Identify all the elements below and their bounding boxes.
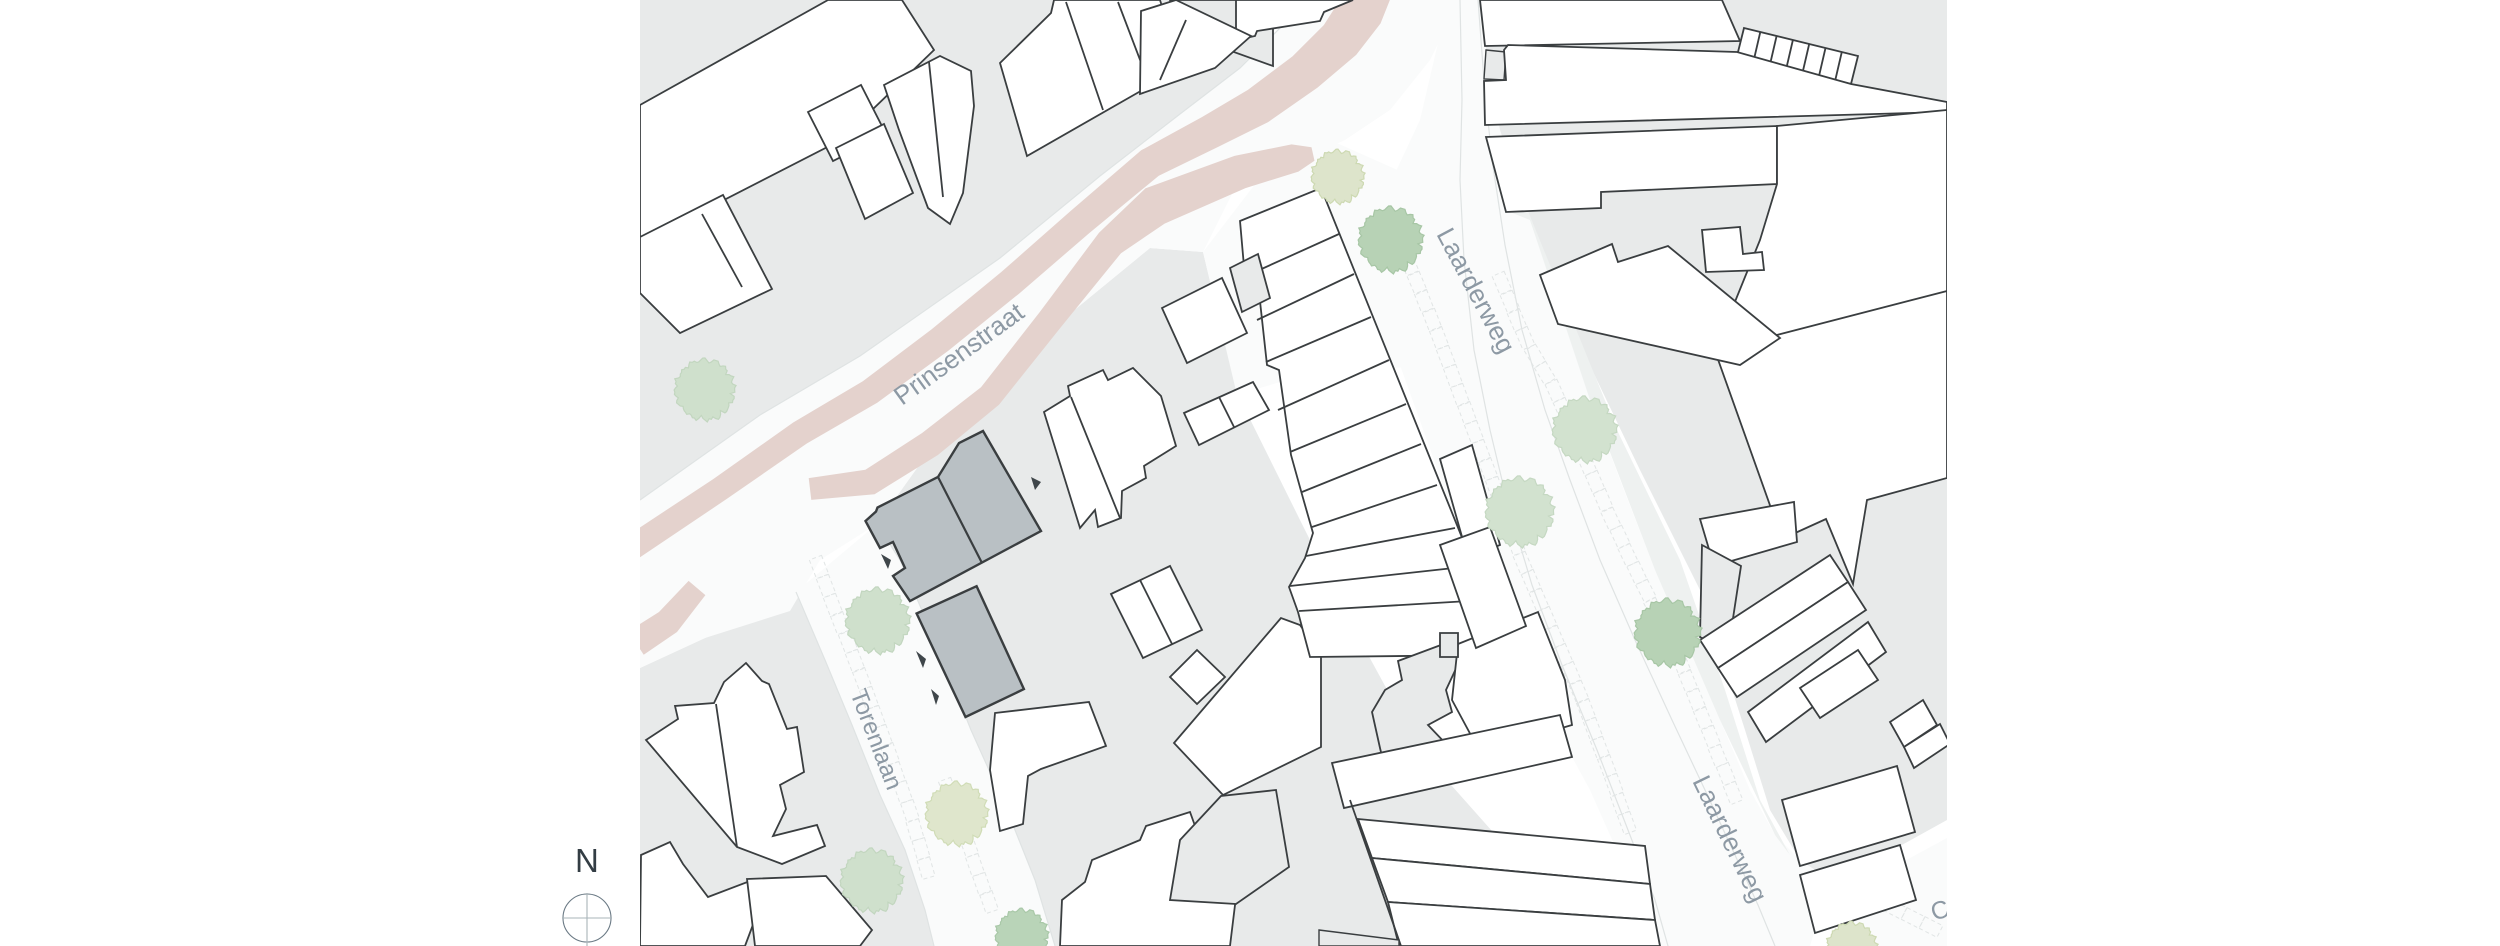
svg-text:N: N: [575, 842, 599, 879]
